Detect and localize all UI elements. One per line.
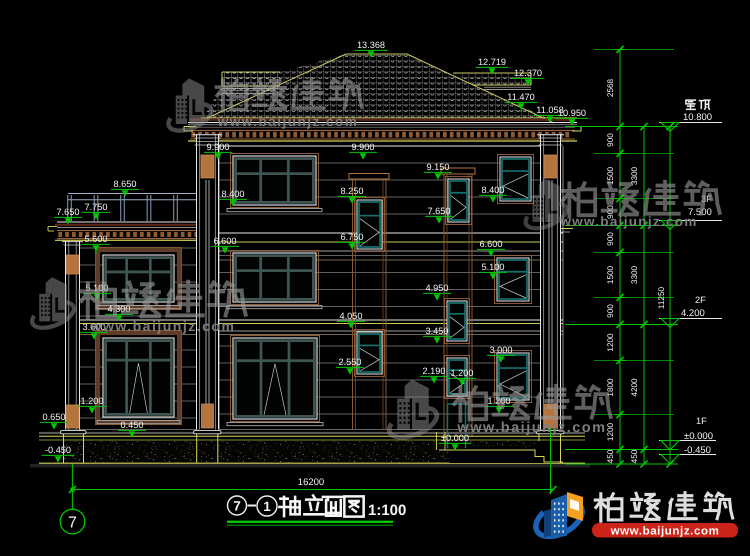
- svg-text:2.550: 2.550: [339, 357, 362, 367]
- svg-text:10.800: 10.800: [683, 112, 712, 123]
- svg-text:9.900: 9.900: [352, 142, 375, 152]
- svg-text:900: 900: [606, 133, 615, 147]
- svg-text:7: 7: [233, 499, 241, 514]
- svg-text:0.450: 0.450: [121, 420, 144, 430]
- svg-text:1F: 1F: [696, 416, 707, 426]
- svg-text:5.600: 5.600: [85, 234, 108, 244]
- svg-text:2.190: 2.190: [423, 366, 446, 376]
- svg-text:www.baijunjz.com: www.baijunjz.com: [217, 114, 359, 129]
- svg-text:1: 1: [263, 499, 271, 514]
- svg-text:450: 450: [606, 449, 615, 463]
- svg-text:4.200: 4.200: [681, 308, 705, 319]
- svg-text:1500: 1500: [606, 265, 615, 284]
- svg-text:3.450: 3.450: [426, 326, 449, 336]
- svg-text:16200: 16200: [298, 477, 324, 488]
- svg-text:www.baijunjz.com: www.baijunjz.com: [90, 318, 236, 334]
- svg-text:www.baijunjz.com: www.baijunjz.com: [610, 526, 720, 538]
- svg-text:9.900: 9.900: [207, 142, 230, 152]
- svg-text:-0.450: -0.450: [45, 445, 71, 455]
- svg-text:4.050: 4.050: [340, 311, 363, 321]
- svg-text:1.200: 1.200: [81, 396, 104, 406]
- svg-text:1200: 1200: [606, 333, 615, 352]
- svg-text:2F: 2F: [695, 295, 706, 305]
- svg-text:12.370: 12.370: [514, 68, 542, 78]
- svg-text:1.200: 1.200: [451, 368, 474, 378]
- svg-text:8.400: 8.400: [482, 185, 505, 195]
- svg-text:450: 450: [630, 449, 639, 463]
- svg-text:7.650: 7.650: [57, 207, 80, 217]
- svg-text:8.250: 8.250: [341, 186, 364, 196]
- svg-text:www.baijunjz.com: www.baijunjz.com: [456, 420, 606, 436]
- svg-text:6.750: 6.750: [341, 232, 364, 242]
- svg-text:7.750: 7.750: [85, 202, 108, 212]
- svg-text:7.650: 7.650: [428, 206, 451, 216]
- svg-text:1200: 1200: [606, 422, 615, 441]
- svg-text:13.368: 13.368: [357, 40, 385, 50]
- svg-text:8.400: 8.400: [222, 189, 245, 199]
- svg-text:1:100: 1:100: [368, 502, 406, 519]
- svg-text:11.470: 11.470: [507, 92, 534, 102]
- svg-text:10.950: 10.950: [558, 108, 586, 118]
- svg-text:11250: 11250: [657, 286, 666, 309]
- svg-text:0.650: 0.650: [43, 412, 66, 422]
- svg-text:5.100: 5.100: [482, 262, 505, 272]
- svg-text:2568: 2568: [606, 78, 615, 97]
- svg-text:7: 7: [68, 515, 77, 532]
- svg-text:6.600: 6.600: [480, 239, 503, 249]
- svg-text:8.650: 8.650: [114, 179, 137, 189]
- svg-text:900: 900: [606, 232, 615, 246]
- svg-text:4.950: 4.950: [426, 283, 449, 293]
- svg-text:900: 900: [606, 304, 615, 318]
- svg-text:3.000: 3.000: [490, 345, 513, 355]
- svg-text:www.baijunjz.com: www.baijunjz.com: [559, 214, 697, 229]
- svg-text:9.150: 9.150: [427, 162, 450, 172]
- svg-text:12.719: 12.719: [478, 57, 506, 67]
- svg-text:4200: 4200: [630, 378, 639, 397]
- svg-text:6.600: 6.600: [214, 236, 237, 246]
- svg-text:3300: 3300: [630, 265, 639, 284]
